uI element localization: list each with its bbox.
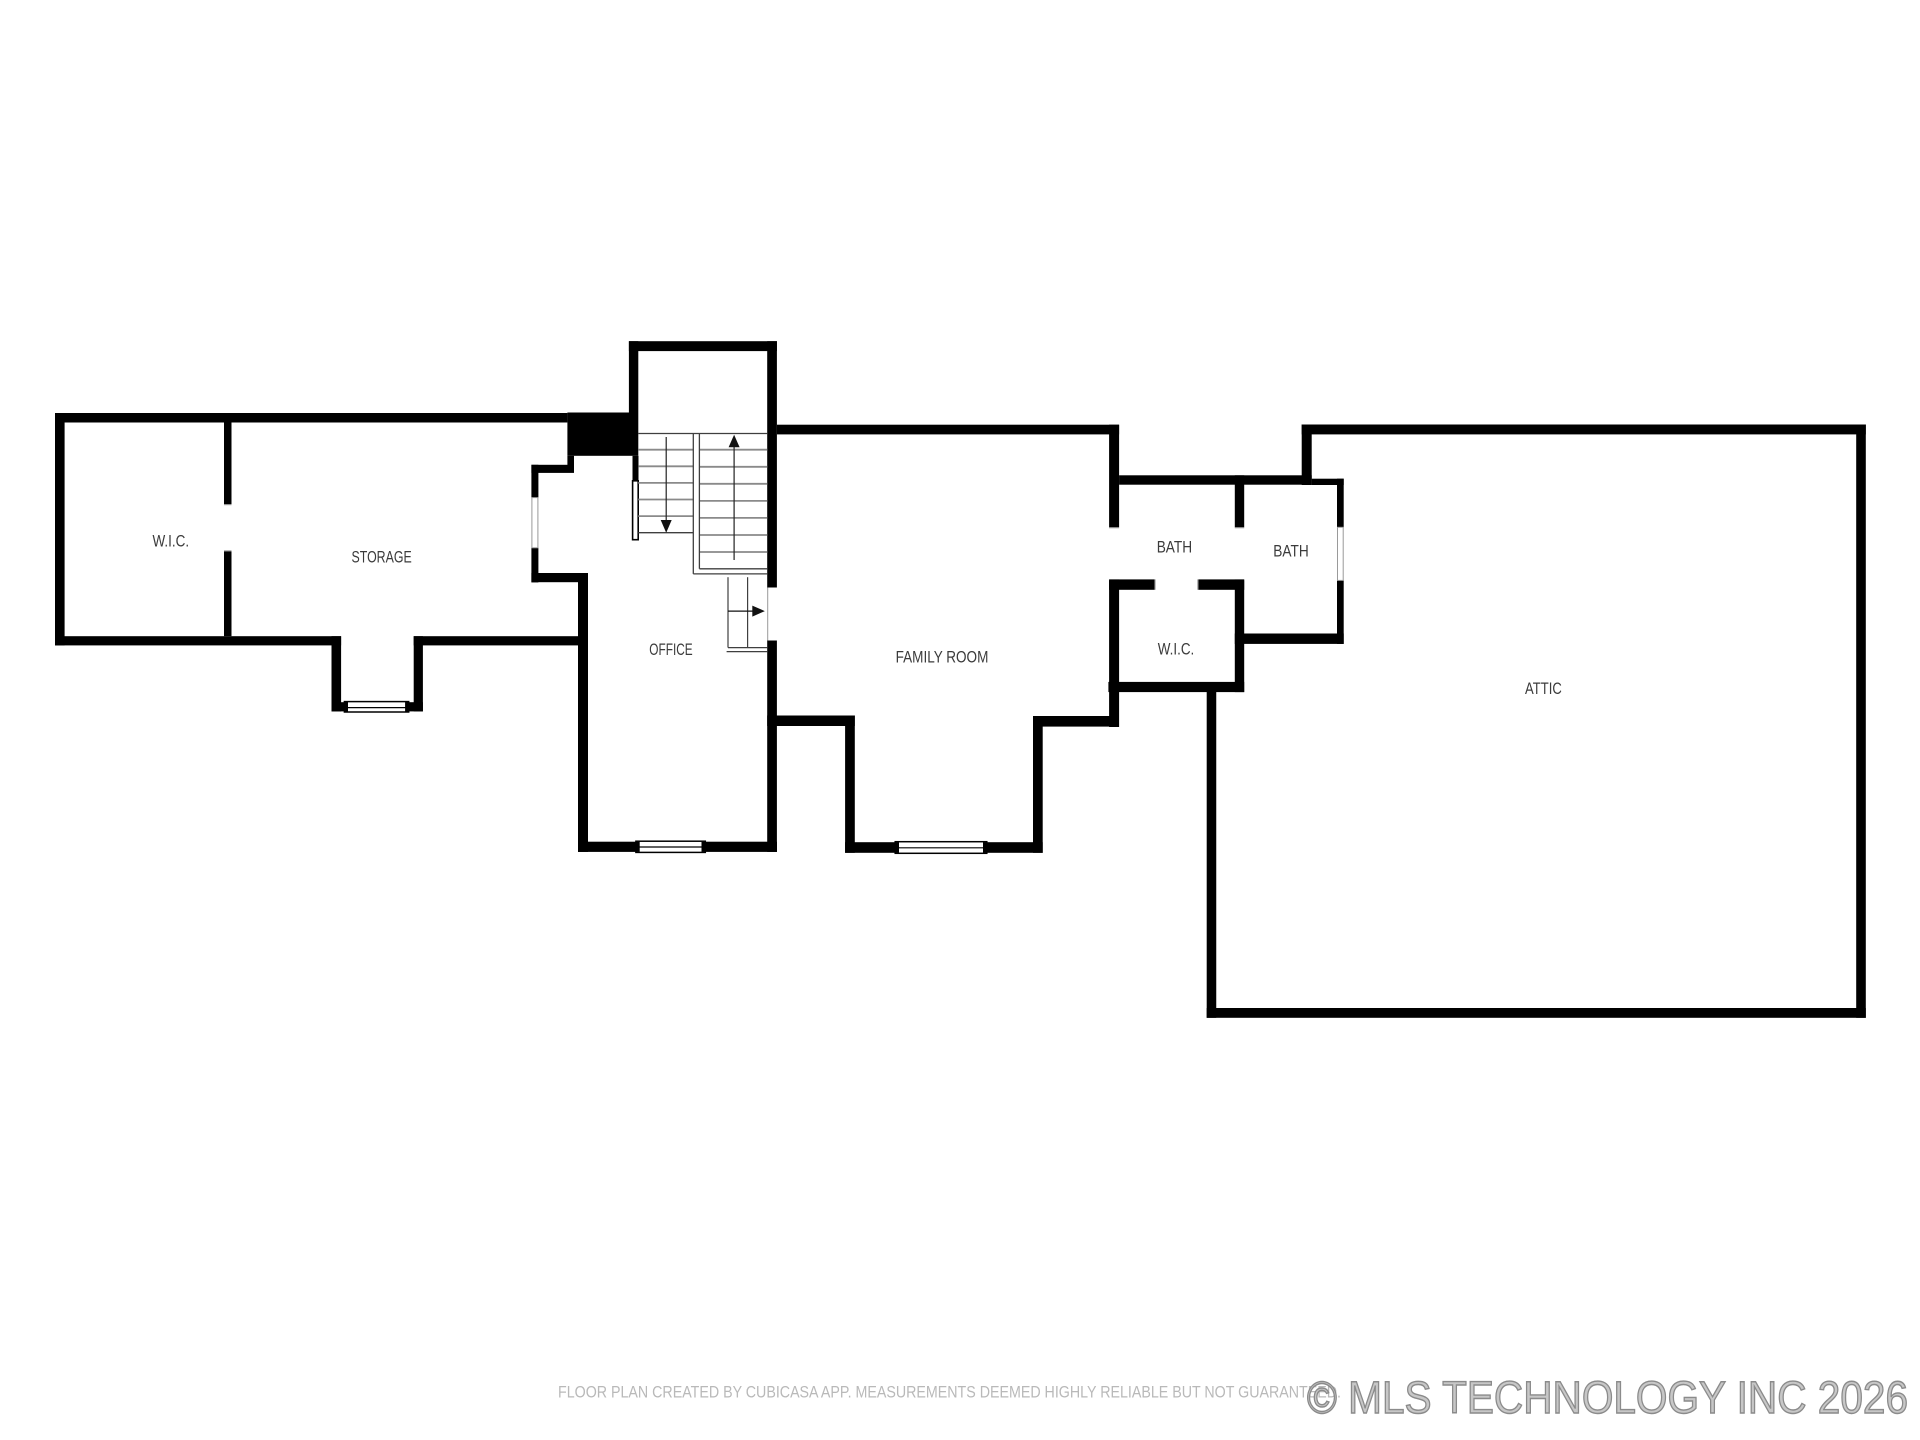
svg-text:BATH: BATH (1273, 543, 1308, 561)
svg-text:W.I.C.: W.I.C. (1158, 640, 1195, 658)
svg-text:ATTIC: ATTIC (1525, 680, 1562, 698)
svg-text:© MLS TECHNOLOGY INC 2026: © MLS TECHNOLOGY INC 2026 (1307, 1372, 1908, 1423)
svg-text:W.I.C.: W.I.C. (152, 533, 189, 551)
svg-text:FAMILY ROOM: FAMILY ROOM (896, 648, 989, 666)
svg-text:BATH: BATH (1157, 538, 1192, 556)
svg-text:STORAGE: STORAGE (352, 548, 412, 566)
svg-text:FLOOR PLAN CREATED BY CUBICASA: FLOOR PLAN CREATED BY CUBICASA APP. MEAS… (558, 1383, 1341, 1401)
svg-text:OFFICE: OFFICE (649, 641, 693, 659)
